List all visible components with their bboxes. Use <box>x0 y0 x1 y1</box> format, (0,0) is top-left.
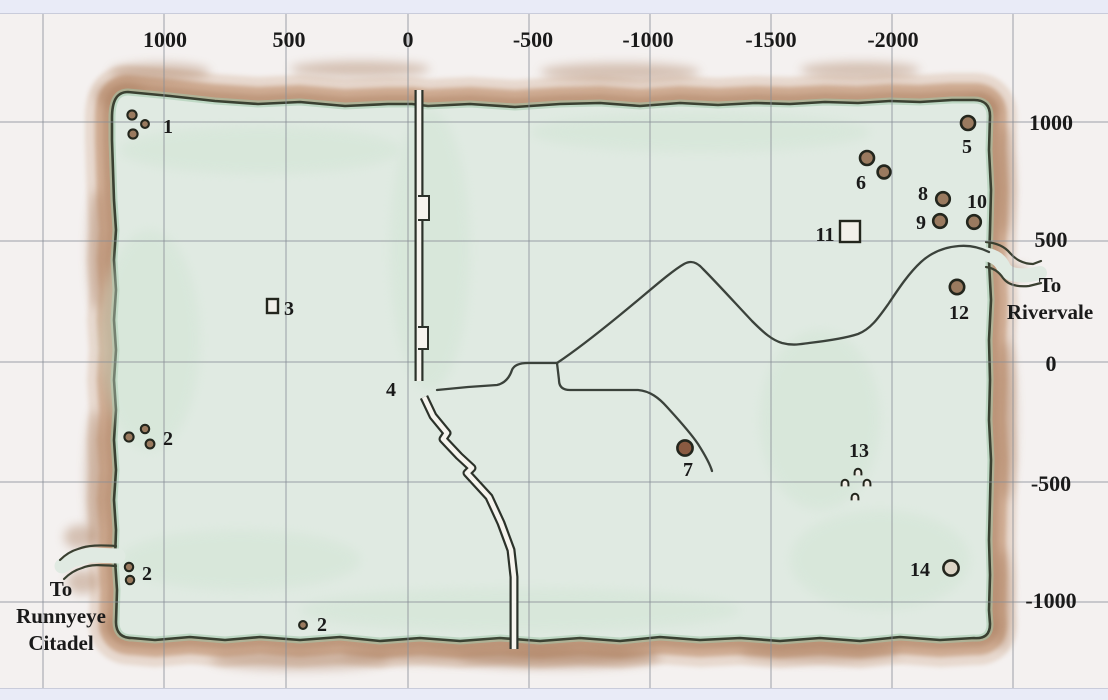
marker-cave <box>864 480 871 487</box>
band-blotch <box>110 63 210 81</box>
band-blotch <box>740 642 900 662</box>
axis-tick-right: -1000 <box>1025 588 1076 613</box>
marker-dot <box>127 110 136 119</box>
marker-label-3: 3 <box>284 298 294 320</box>
marker-label-6: 6 <box>856 172 866 194</box>
runnyeye-citadel-exit-label: To <box>50 577 73 601</box>
band-blotch <box>88 190 106 310</box>
marker-cave <box>842 480 849 487</box>
bottom-edge-strip <box>0 688 1108 700</box>
marker-dot <box>299 621 307 629</box>
marker-label-7: 7 <box>683 459 693 481</box>
marker-dot <box>933 214 947 228</box>
marker-dot <box>943 560 958 575</box>
marker-dot <box>677 440 692 455</box>
axis-tick-top: 0 <box>403 27 414 52</box>
marker-dot <box>961 116 975 130</box>
land-mottle <box>790 510 970 610</box>
band-blotch <box>290 61 430 77</box>
axis-tick-top: -1500 <box>745 27 796 52</box>
zone-map: 122234567891011121314 10005000-500-1000-… <box>0 0 1108 700</box>
marker-label-2a: 2 <box>163 428 173 450</box>
axis-tick-right: -500 <box>1031 471 1071 496</box>
land-mottle <box>120 126 400 174</box>
marker-label-1: 1 <box>163 116 173 138</box>
marker-label-11: 11 <box>816 224 835 246</box>
marker-label-4: 4 <box>386 379 396 401</box>
marker-dot <box>860 151 874 165</box>
marker-dot <box>950 280 964 294</box>
runnyeye-citadel-exit-label: Runnyeye <box>16 604 106 628</box>
marker-label-2b: 2 <box>142 563 152 585</box>
marker-label-8: 8 <box>918 183 928 205</box>
marker-square <box>840 221 860 242</box>
map-canvas: 122234567891011121314 10005000-500-1000-… <box>0 0 1108 700</box>
axis-tick-right: 0 <box>1046 351 1057 376</box>
marker-dot <box>146 440 155 449</box>
marker-dot <box>936 192 950 206</box>
rivervale-exit-label: Rivervale <box>1007 300 1093 324</box>
band-blotch <box>340 646 660 664</box>
axis-tick-top: -1000 <box>622 27 673 52</box>
marker-label-14: 14 <box>910 559 930 581</box>
land-mottle <box>120 530 360 590</box>
band-blotch <box>995 125 1013 235</box>
marker-label-2c: 2 <box>317 614 327 636</box>
axis-tick-top: 1000 <box>143 27 187 52</box>
marker-dot <box>124 432 133 441</box>
band-blotch <box>800 62 920 78</box>
marker-label-5: 5 <box>962 136 972 158</box>
land-mottle <box>100 230 200 450</box>
axis-tick-top: -500 <box>513 27 553 52</box>
marker-dot <box>878 166 891 179</box>
runnyeye-citadel-exit-label: Citadel <box>28 631 93 655</box>
axis-tick-top: -2000 <box>867 27 918 52</box>
axis-tick-right: 1000 <box>1029 110 1073 135</box>
marker-dot <box>141 425 149 433</box>
marker-label-13: 13 <box>849 440 869 462</box>
band-blotch <box>993 550 1011 650</box>
marker-square <box>267 299 278 313</box>
axis-tick-right: 500 <box>1035 227 1068 252</box>
wall-notch <box>418 327 428 349</box>
top-edge-strip <box>0 0 1108 14</box>
land-mottle <box>300 588 740 632</box>
rivervale-exit-label: To <box>1039 273 1062 297</box>
marker-4: 4 <box>386 379 396 401</box>
marker-dot <box>141 120 149 128</box>
marker-dot <box>125 563 133 571</box>
marker-cave <box>855 469 862 476</box>
marker-dot <box>126 576 134 584</box>
land-mottle <box>760 330 880 510</box>
axis-tick-top: 500 <box>273 27 306 52</box>
marker-cave <box>852 494 859 501</box>
marker-label-12: 12 <box>949 302 969 324</box>
marker-label-10: 10 <box>967 191 987 213</box>
wall-notch <box>418 196 429 220</box>
marker-dot <box>128 129 137 138</box>
land-mottle <box>530 112 870 152</box>
marker-label-9: 9 <box>916 212 926 234</box>
marker-dot <box>967 215 981 229</box>
land-mottle <box>390 110 470 390</box>
band-blotch <box>540 63 700 81</box>
